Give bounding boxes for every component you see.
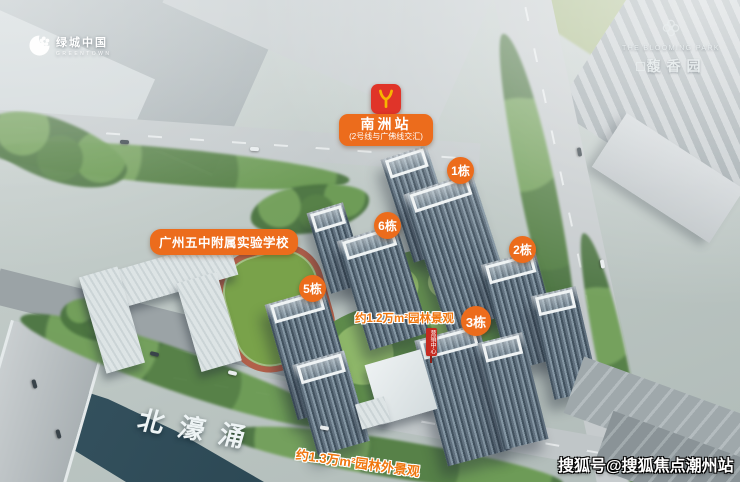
metro-station-badge bbox=[371, 84, 401, 114]
building-marker-1: 1栋 bbox=[447, 157, 474, 184]
building-marker-6: 6栋 bbox=[374, 212, 401, 239]
car bbox=[250, 147, 259, 152]
metro-station-name: 南洲站 bbox=[345, 117, 427, 132]
project-name-en: THE BLOOMING PARK bbox=[616, 45, 726, 52]
sales-center-flag: 营销中心 bbox=[426, 328, 437, 356]
building-marker-2: 2栋 bbox=[509, 236, 536, 263]
project-name-cn: 馥香园 bbox=[647, 56, 707, 76]
greentown-name-cn: 绿城中国 bbox=[56, 34, 111, 50]
building-marker-5: 5栋 bbox=[299, 275, 326, 302]
building-marker-3: 3栋 bbox=[461, 306, 491, 336]
greentown-crescent-flower-icon bbox=[28, 34, 51, 57]
sohu-watermark: 搜狐号@搜狐焦点潮州站 bbox=[558, 452, 734, 476]
project-logo: THE BLOOMING PARK 馥香园 bbox=[616, 18, 726, 76]
car bbox=[120, 140, 129, 145]
aerial-rendering: 绿城中国 GREENTOWN THE BLOOMING PARK 馥香园 南洲站 bbox=[0, 0, 740, 482]
guangzhou-metro-icon bbox=[374, 87, 398, 111]
quatrefoil-clover-icon bbox=[661, 18, 681, 38]
metro-station-subtitle: (2号线与广佛线交汇) bbox=[345, 132, 427, 142]
seal-icon bbox=[636, 62, 645, 71]
school-label: 广州五中附属实验学校 bbox=[150, 229, 298, 255]
garden-inner-callout: 约1.2万m²园林景观 bbox=[355, 310, 454, 326]
greentown-name-en: GREENTOWN bbox=[56, 51, 111, 57]
greentown-logo: 绿城中国 GREENTOWN bbox=[28, 34, 111, 57]
project-name-cn-row: 馥香园 bbox=[616, 56, 726, 76]
metro-station-label: 南洲站 (2号线与广佛线交汇) bbox=[339, 114, 433, 146]
